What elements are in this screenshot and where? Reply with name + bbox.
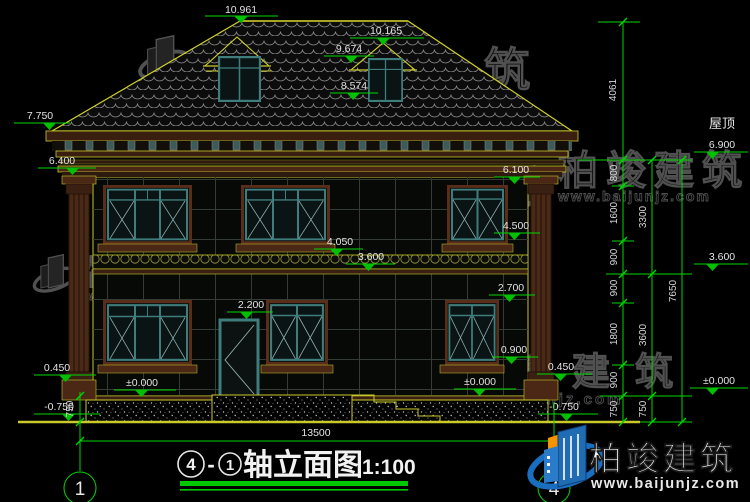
title-text: 轴立面图 — [243, 448, 363, 482]
dim-text: 900 — [609, 279, 620, 296]
roof-label-text: 屋顶 — [709, 116, 735, 131]
dim-text: 3600 — [638, 323, 649, 346]
eave-fascia — [46, 131, 578, 141]
title-block: 4 - 1 轴立面图 1:100 — [178, 448, 416, 491]
elevation-text: 3.600 — [358, 251, 384, 263]
elevation-text: 6.400 — [49, 155, 75, 167]
window-sill — [440, 365, 504, 373]
dim-text: 750 — [65, 400, 76, 417]
title-scale: 1:100 — [362, 456, 416, 479]
marker-zero-right: ±0.000 — [690, 375, 748, 395]
cad-canvas: 柏竣建筑 www.baijunjz.com 柏竣建筑 www.baijunjz.… — [0, 0, 750, 502]
elevation-text: 10.165 — [370, 25, 402, 37]
elevation-text: ±0.000 — [464, 376, 496, 388]
window-sill — [98, 365, 197, 373]
dim-text: 3300 — [638, 205, 649, 228]
window-f2-middle — [243, 186, 329, 242]
dim-text: 800 — [609, 164, 620, 181]
logo-brand-text: 柏竣建筑 — [589, 440, 737, 477]
dormer-window — [369, 59, 402, 101]
watermark-url: www.baijunjz.com — [557, 188, 711, 204]
elevation-text: 6.100 — [503, 164, 529, 176]
title-underline-thin — [180, 489, 408, 491]
elevation-text: 0.900 — [501, 344, 527, 356]
dim-text: 4061 — [608, 78, 619, 101]
wall-cornice-lower — [62, 172, 562, 177]
dim-text: 750 — [609, 400, 620, 417]
window-f1-left — [105, 302, 191, 364]
dim-text: 1600 — [609, 201, 620, 224]
title-bubble-a: 4 — [186, 455, 196, 474]
elevation-text: ±0.000 — [126, 377, 158, 389]
elevation-text: 2.700 — [498, 282, 524, 294]
elevation-text: 8.574 — [341, 80, 367, 92]
elevation-text: 0.450 — [548, 361, 574, 373]
elevation-text: 6.900 — [709, 139, 735, 151]
elevation-text: 0.450 — [44, 362, 70, 374]
window-sill — [261, 365, 333, 373]
porch — [212, 395, 352, 422]
title-underline-thick — [180, 481, 408, 486]
title-bubble-b: 1 — [226, 457, 234, 474]
entry-door — [220, 320, 258, 399]
elevation-text: 10.961 — [225, 4, 257, 16]
window-f2-right — [449, 186, 507, 242]
window-sill — [442, 244, 513, 252]
dim-text: 750 — [638, 400, 649, 417]
elevation-text: ±0.000 — [703, 375, 735, 387]
cornice-molding — [56, 151, 568, 157]
dim-total-width: 13500 — [301, 427, 330, 439]
watermark-brand: 柏竣建筑 — [558, 149, 750, 193]
dim-text: 900 — [609, 248, 620, 265]
dentil-band — [52, 141, 572, 151]
elevation-text: 4.500 — [503, 220, 529, 232]
dim-text: 1800 — [609, 322, 620, 345]
marker-f2-floor-right: 3.600 — [694, 251, 748, 271]
brand-logo: 柏竣建筑 www.baijunjz.com — [525, 425, 740, 495]
elevation-drawing: 柏竣建筑 www.baijunjz.com 柏竣建筑 www.baijunjz.… — [0, 0, 750, 502]
logo-wing-icon — [544, 446, 558, 483]
logo-url-text: www.baijunjz.com — [590, 476, 740, 492]
dim-text: 900 — [609, 371, 620, 388]
elevation-text: 9.674 — [336, 43, 362, 55]
dim-text: 7650 — [668, 279, 679, 302]
elevation-text: 2.200 — [238, 299, 264, 311]
roof-label: 屋顶 — [709, 116, 735, 131]
elevation-text: 7.750 — [27, 110, 53, 122]
wall-cornice — [58, 166, 566, 172]
axis-number: 1 — [75, 479, 86, 500]
roof — [46, 21, 578, 164]
window-sill — [236, 244, 335, 252]
window-f1-middle — [268, 302, 327, 364]
axis-bubble-left: 1 — [64, 472, 96, 502]
window-f2-left — [105, 186, 191, 242]
elevation-text: 4.050 — [327, 236, 353, 248]
elevation-text: 3.600 — [709, 251, 735, 263]
logo-tower-icon — [558, 425, 586, 487]
window-sill — [98, 244, 197, 252]
title-dash: - — [207, 452, 214, 477]
dormer-window — [219, 57, 260, 101]
window-f1-right — [446, 302, 497, 364]
marker-ridge: 10.961 — [205, 4, 278, 23]
